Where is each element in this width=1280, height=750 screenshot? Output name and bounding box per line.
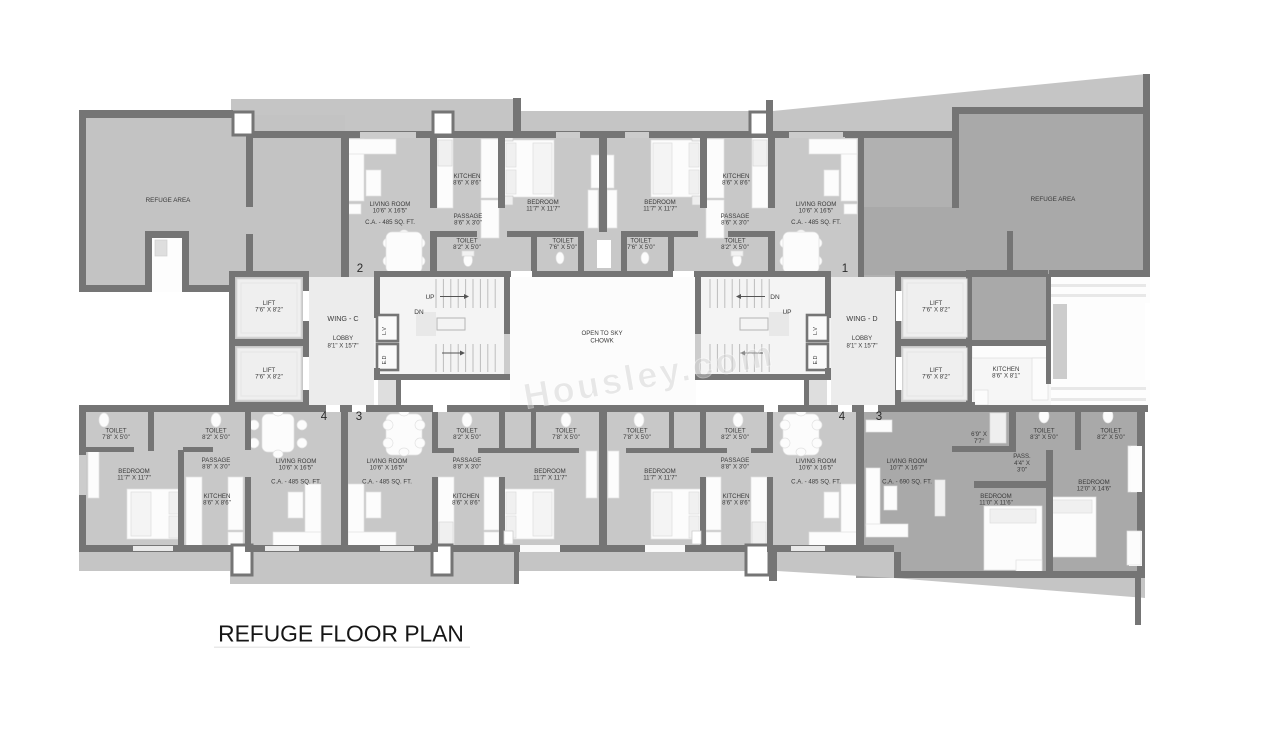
svg-text:8'8" X 3'0": 8'8" X 3'0" [453,464,481,471]
svg-text:10'6" X 16'5": 10'6" X 16'5" [799,465,833,472]
svg-text:8'6" X 8'6": 8'6" X 8'6" [722,500,750,507]
svg-text:2: 2 [357,263,363,275]
svg-text:C.A. - 485 SQ. FT.: C.A. - 485 SQ. FT. [362,479,412,486]
svg-text:REFUGE FLOOR PLAN: REFUGE FLOOR PLAN [218,621,464,647]
svg-text:UP: UP [425,294,434,301]
svg-text:11'7" X 11'7": 11'7" X 11'7" [533,475,567,482]
svg-text:7'6" X 5'0": 7'6" X 5'0" [549,244,577,251]
svg-text:DN: DN [414,309,424,316]
svg-text:12'0" X 14'6": 12'0" X 14'6" [1077,486,1111,493]
svg-text:L.V: L.V [382,327,388,335]
svg-text:8'6" X 8'6": 8'6" X 8'6" [203,500,231,507]
svg-text:CHOWK: CHOWK [590,338,613,345]
svg-text:C.A. - 485 SQ. FT.: C.A. - 485 SQ. FT. [271,479,321,486]
svg-text:8'2" X 5'0": 8'2" X 5'0" [202,434,230,441]
svg-text:3'0": 3'0" [1017,467,1027,474]
svg-text:8'2" X 5'0": 8'2" X 5'0" [721,434,749,441]
svg-text:10'6" X 16'5": 10'6" X 16'5" [373,208,407,215]
svg-text:PASS.: PASS. [1013,453,1031,460]
svg-text:11'7" X 11'7": 11'7" X 11'7" [117,475,151,482]
svg-text:7'8" X 5'0": 7'8" X 5'0" [102,434,130,441]
svg-text:WING - D: WING - D [846,314,877,323]
svg-text:7'6" X 8'2": 7'6" X 8'2" [255,374,283,381]
svg-text:6'9" X: 6'9" X [971,431,987,438]
svg-text:E.D: E.D [382,355,388,364]
svg-text:8'6" X 8'6": 8'6" X 8'6" [722,180,750,187]
svg-text:8'2" X 5'0": 8'2" X 5'0" [453,244,481,251]
svg-text:11'7" X 11'7": 11'7" X 11'7" [526,206,560,213]
svg-text:LOBBY: LOBBY [852,335,872,342]
svg-text:8'2" X 5'0": 8'2" X 5'0" [1097,434,1125,441]
svg-text:10'7" X 16'7": 10'7" X 16'7" [890,465,924,472]
svg-text:4: 4 [839,411,846,423]
svg-text:C.A. - 485 SQ. FT.: C.A. - 485 SQ. FT. [365,219,415,226]
svg-text:L.V: L.V [813,327,819,335]
svg-text:8'2" X 5'0": 8'2" X 5'0" [453,434,481,441]
svg-text:8'6" X 3'0": 8'6" X 3'0" [721,220,749,227]
svg-text:1: 1 [842,263,848,275]
svg-text:REFUGE AREA: REFUGE AREA [1031,196,1077,203]
svg-text:WING - C: WING - C [327,314,358,323]
svg-text:3: 3 [356,411,362,423]
svg-text:10'6" X 16'5": 10'6" X 16'5" [279,465,313,472]
svg-text:10'6" X 16'5": 10'6" X 16'5" [370,465,404,472]
svg-text:C.A. - 690 SQ. FT.: C.A. - 690 SQ. FT. [882,479,932,486]
svg-text:11'0" X 11'6": 11'0" X 11'6" [979,500,1013,507]
svg-text:E.D: E.D [813,355,819,364]
svg-text:8'6" X 8'1": 8'6" X 8'1" [992,373,1020,380]
svg-text:7'6" X 8'2": 7'6" X 8'2" [922,374,950,381]
svg-text:8'8" X 3'0": 8'8" X 3'0" [721,464,749,471]
svg-text:7'8" X 5'0": 7'8" X 5'0" [623,434,651,441]
svg-text:REFUGE AREA: REFUGE AREA [146,197,192,204]
svg-text:11'7" X 11'7": 11'7" X 11'7" [643,475,677,482]
svg-text:3: 3 [876,411,882,423]
svg-text:8'1" X 15'7": 8'1" X 15'7" [846,343,877,350]
svg-text:OPEN TO SKY: OPEN TO SKY [581,330,622,337]
svg-text:8'6" X 8'6": 8'6" X 8'6" [453,180,481,187]
svg-text:4: 4 [321,411,328,423]
svg-text:8'2" X 5'0": 8'2" X 5'0" [721,244,749,251]
svg-text:7'6" X 5'0": 7'6" X 5'0" [627,244,655,251]
svg-text:8'3" X 5'0": 8'3" X 5'0" [1030,434,1058,441]
svg-text:7'7": 7'7" [974,438,984,445]
svg-text:DN: DN [770,294,780,301]
svg-text:LOBBY: LOBBY [333,335,353,342]
svg-text:8'8" X 3'0": 8'8" X 3'0" [202,464,230,471]
svg-text:C.A. - 485 SQ. FT.: C.A. - 485 SQ. FT. [791,479,841,486]
svg-text:8'6" X 3'0": 8'6" X 3'0" [454,220,482,227]
svg-text:7'6" X 8'2": 7'6" X 8'2" [922,307,950,314]
svg-text:8'1" X 15'7": 8'1" X 15'7" [327,343,358,350]
svg-text:7'8" X 5'0": 7'8" X 5'0" [552,434,580,441]
svg-text:11'7" X 11'7": 11'7" X 11'7" [643,206,677,213]
svg-text:8'6" X 8'6": 8'6" X 8'6" [452,500,480,507]
svg-text:C.A. - 485 SQ. FT.: C.A. - 485 SQ. FT. [791,219,841,226]
svg-text:10'6" X 16'5": 10'6" X 16'5" [799,208,833,215]
svg-text:UP: UP [782,309,791,316]
svg-text:7'6" X 8'2": 7'6" X 8'2" [255,307,283,314]
